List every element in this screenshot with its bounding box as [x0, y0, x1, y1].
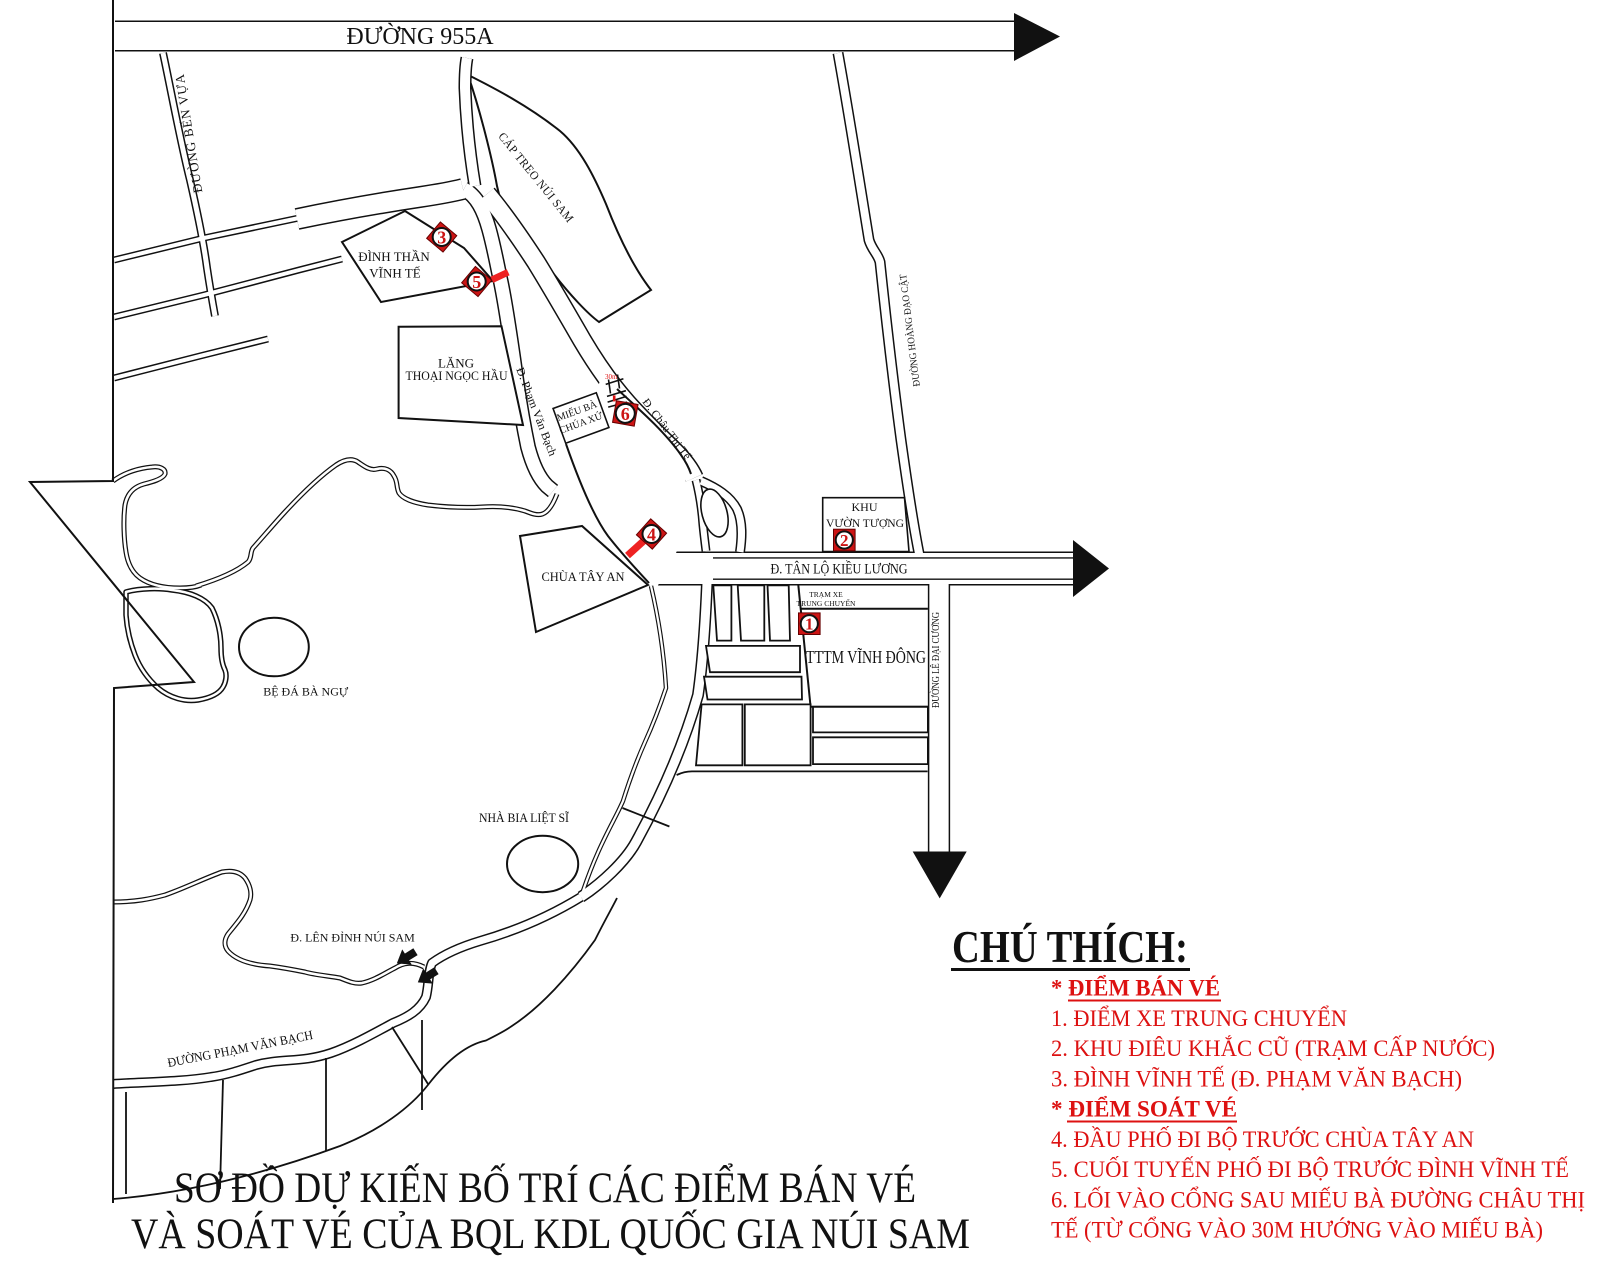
svg-text:4. ĐẦU PHỐ ĐI BỘ TRƯỚC CHÙA TÂ: 4. ĐẦU PHỐ ĐI BỘ TRƯỚC CHÙA TÂY AN [1051, 1126, 1474, 1152]
svg-text:4: 4 [647, 525, 656, 545]
svg-text:* ĐIỂM BÁN VÉ: * ĐIỂM BÁN VÉ [1051, 975, 1220, 1001]
svg-text:6: 6 [621, 404, 630, 424]
svg-text:1. ĐIỂM XE TRUNG CHUYỂN: 1. ĐIỂM XE TRUNG CHUYỂN [1051, 1005, 1347, 1031]
svg-text:BỆ ĐÁ BÀ NGỰ: BỆ ĐÁ BÀ NGỰ [263, 685, 349, 699]
svg-text:TRUNG CHUYỂN: TRUNG CHUYỂN [797, 598, 857, 608]
svg-text:* ĐIỂM SOÁT VÉ: * ĐIỂM SOÁT VÉ [1051, 1096, 1237, 1122]
svg-text:KHU: KHU [852, 500, 878, 514]
svg-text:ĐÌNH THẦN: ĐÌNH THẦN [358, 249, 430, 264]
svg-text:5. CUỐI TUYẾN PHỐ ĐI BỘ TRƯỚC: 5. CUỐI TUYẾN PHỐ ĐI BỘ TRƯỚC ĐÌNH VĨNH … [1051, 1156, 1569, 1182]
svg-text:ĐƯỜNG 955A: ĐƯỜNG 955A [346, 23, 494, 50]
svg-text:VÀ SOÁT VÉ CỦA BQL KDL QUỐC GI: VÀ SOÁT VÉ CỦA BQL KDL QUỐC GIA NÚI SAM [131, 1210, 970, 1258]
svg-text:3: 3 [437, 228, 446, 248]
svg-text:SƠ ĐỒ DỰ KIẾN BỐ TRÍ CÁC ĐIỂM: SƠ ĐỒ DỰ KIẾN BỐ TRÍ CÁC ĐIỂM BÁN VÉ [174, 1164, 916, 1212]
svg-text:30m: 30m [605, 373, 618, 381]
svg-text:5: 5 [472, 272, 481, 292]
svg-text:THOẠI NGỌC HẦU: THOẠI NGỌC HẦU [406, 368, 509, 383]
svg-text:2: 2 [840, 531, 849, 550]
svg-text:Đ. TÂN LỘ KIỀU LƯƠNG: Đ. TÂN LỘ KIỀU LƯƠNG [771, 561, 908, 578]
svg-text:ĐƯỜNG LÊ ĐẠI CƯƠNG: ĐƯỜNG LÊ ĐẠI CƯƠNG [930, 612, 942, 708]
svg-text:Đ. LÊN ĐỈNH NÚI SAM: Đ. LÊN ĐỈNH NÚI SAM [290, 931, 415, 945]
svg-text:VƯỜN TƯỢNG: VƯỜN TƯỢNG [826, 516, 904, 530]
svg-text:3. ĐÌNH VĨNH TẾ (Đ. PHẠM VĂN B: 3. ĐÌNH VĨNH TẾ (Đ. PHẠM VĂN BẠCH) [1051, 1065, 1462, 1091]
svg-text:TẾ (TỪ CỔNG VÀO 30M HƯỚNG VÀO: TẾ (TỪ CỔNG VÀO 30M HƯỚNG VÀO MIẾU BÀ) [1051, 1217, 1543, 1243]
svg-text:CHÚ THÍCH:: CHÚ THÍCH: [952, 921, 1188, 972]
svg-text:NHÀ BIA LIỆT SĨ: NHÀ BIA LIỆT SĨ [479, 811, 570, 825]
svg-text:VĨNH TẾ: VĨNH TẾ [369, 266, 420, 281]
svg-text:2. KHU ĐIÊU KHẮC CŨ (TRẠM CẤP: 2. KHU ĐIÊU KHẮC CŨ (TRẠM CẤP NƯỚC) [1051, 1035, 1495, 1061]
svg-text:TTTM VĨNH ĐÔNG: TTTM VĨNH ĐÔNG [806, 646, 926, 667]
svg-text:6. LỐI VÀO CỔNG SAU MIẾU BÀ ĐƯ: 6. LỐI VÀO CỔNG SAU MIẾU BÀ ĐƯỜNG CHÂU T… [1051, 1186, 1585, 1212]
svg-text:TRẠM XE: TRẠM XE [809, 590, 843, 599]
svg-text:CHÙA TÂY AN: CHÙA TÂY AN [542, 569, 626, 584]
svg-text:1: 1 [805, 615, 814, 634]
